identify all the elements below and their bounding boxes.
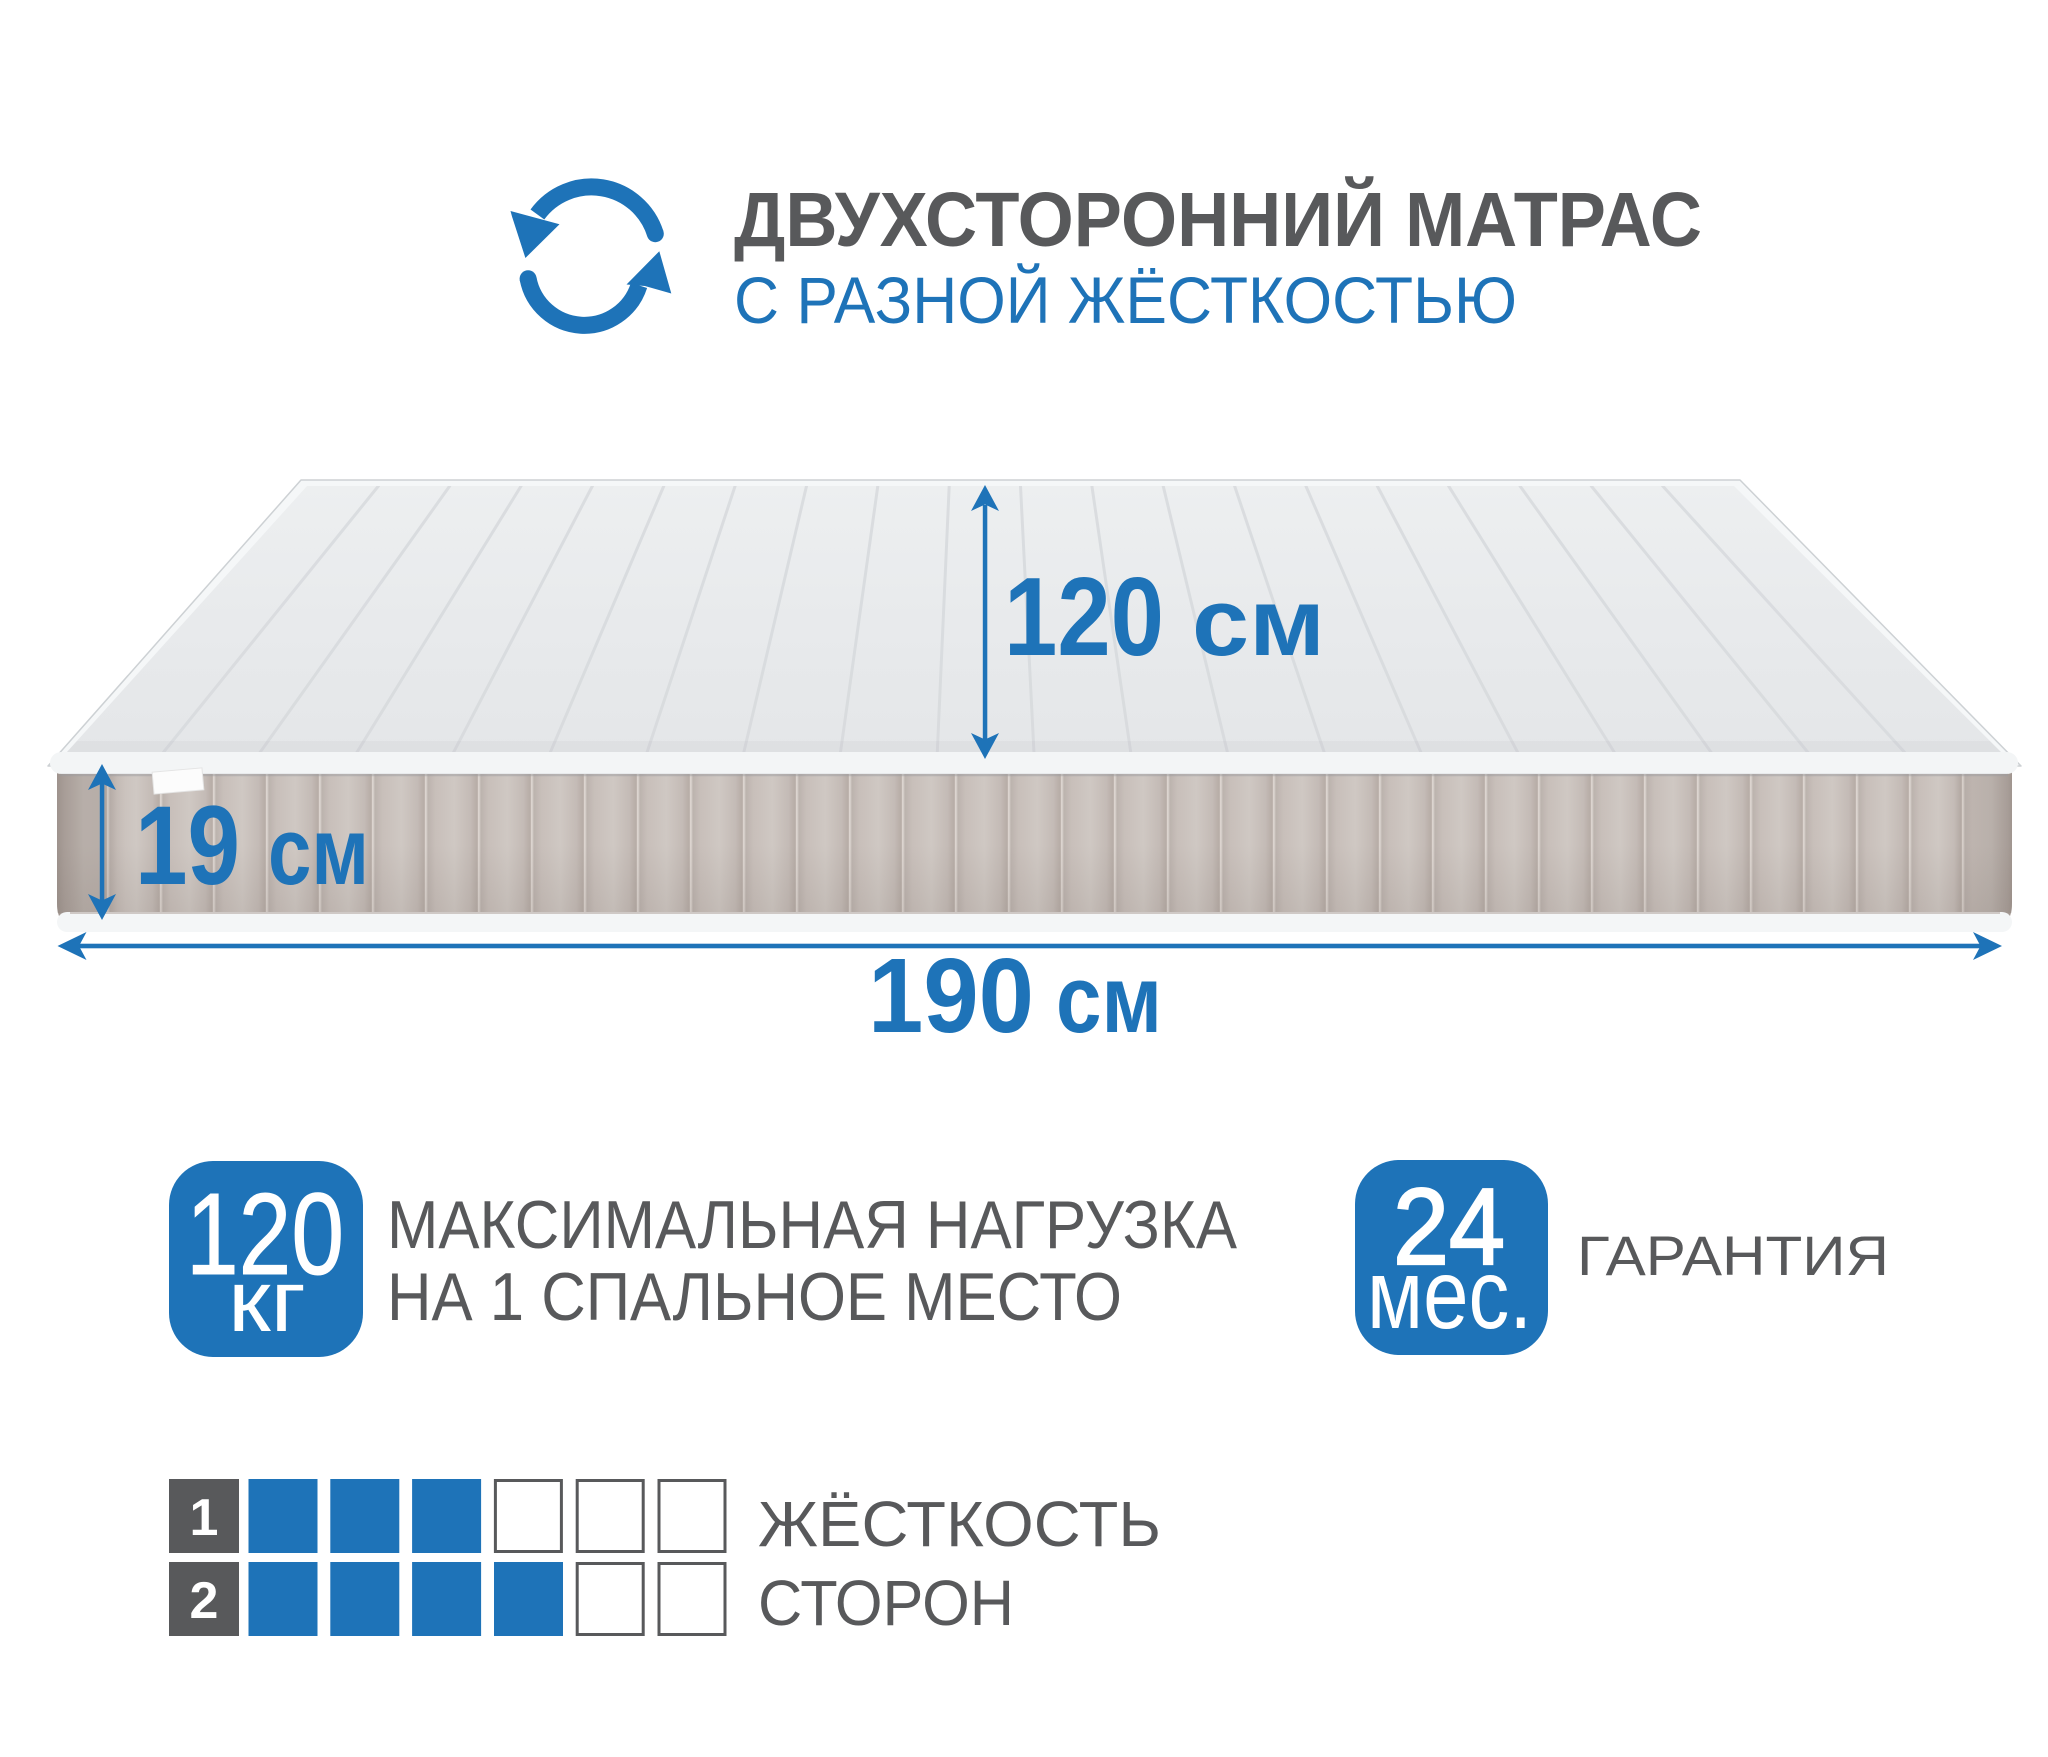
svg-text:190: 190 [868, 937, 1034, 1055]
svg-text:МАКСИМАЛЬНАЯ НАГРУЗКА: МАКСИМАЛЬНАЯ НАГРУЗКА [387, 1187, 1238, 1263]
svg-text:см: см [1192, 569, 1325, 676]
svg-text:ГАРАНТИЯ: ГАРАНТИЯ [1577, 1224, 1889, 1287]
svg-text:см: см [268, 798, 369, 905]
svg-text:ДВУХСТОРОННИЙ МАТРАС: ДВУХСТОРОННИЙ МАТРАС [734, 175, 1702, 263]
svg-text:19: 19 [135, 783, 240, 908]
svg-text:НА 1 СПАЛЬНОЕ МЕСТО: НА 1 СПАЛЬНОЕ МЕСТО [387, 1259, 1122, 1335]
svg-text:120: 120 [1004, 555, 1164, 679]
svg-text:С РАЗНОЙ ЖЁСТКОСТЬЮ: С РАЗНОЙ ЖЁСТКОСТЬЮ [734, 262, 1517, 337]
svg-text:2: 2 [190, 1572, 219, 1630]
svg-text:мес.: мес. [1367, 1239, 1532, 1349]
svg-text:1: 1 [190, 1489, 219, 1547]
svg-text:кг: кг [228, 1253, 306, 1350]
svg-text:ЖЁСТКОСТЬ: ЖЁСТКОСТЬ [758, 1488, 1161, 1560]
svg-text:СТОРОН: СТОРОН [758, 1567, 1014, 1639]
svg-text:см: см [1056, 946, 1162, 1053]
